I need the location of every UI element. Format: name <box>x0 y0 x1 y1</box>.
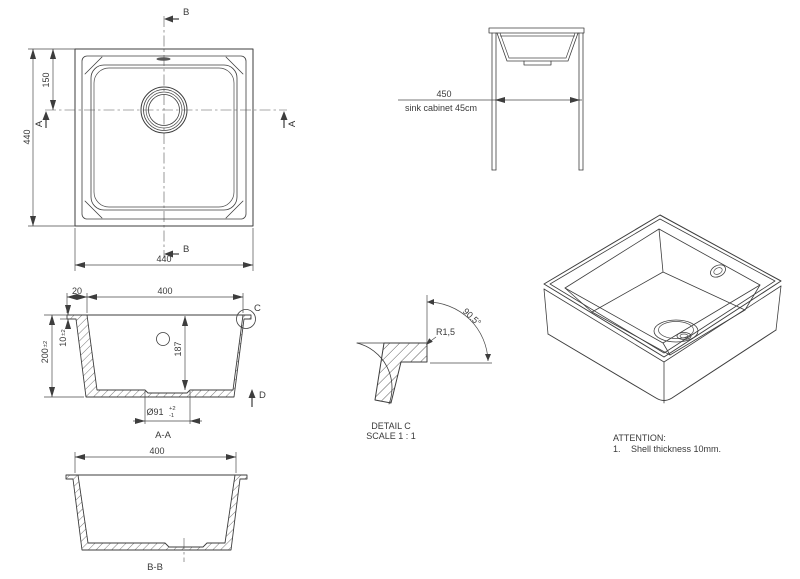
section-bb-title: B-B <box>147 562 163 573</box>
direction-d-label: D <box>259 390 266 401</box>
dim-overall-depth-value: 200 <box>40 348 50 363</box>
dim-bb-opening: 400 <box>75 446 236 473</box>
section-b-marker-top: B <box>164 7 189 23</box>
dim-rim-thickness-value: 10 <box>58 337 68 347</box>
iso-drain <box>654 320 698 342</box>
iso-overflow-hole <box>708 262 727 279</box>
section-aa-title: A-A <box>155 430 172 441</box>
dim-angle-label: 90.5° <box>461 306 484 328</box>
cabinet-note-label: sink cabinet 45cm <box>405 103 477 113</box>
iso-bowl-floor <box>592 272 745 355</box>
section-bb-body <box>66 475 247 550</box>
dim-bowl-depth: 187 <box>173 316 185 390</box>
dim-drain-offset: 150 <box>41 49 53 110</box>
iso-bowl-opening <box>565 229 760 343</box>
dim-overall-depth-tol: ±2 <box>43 341 49 347</box>
dim-rim-thickness-tol: ±2 <box>61 329 67 335</box>
attention-item-text: Shell thickness 10mm. <box>631 444 721 454</box>
section-a-marker-left: A <box>34 111 50 128</box>
dim-cabinet-width-label: 450 <box>436 89 451 99</box>
sink-bowl-profile <box>497 33 578 65</box>
section-a-marker-right: A <box>281 111 299 128</box>
dim-drain-diameter-label: Ø91 <box>146 407 163 417</box>
dim-opening-width-label: 400 <box>157 286 172 296</box>
dim-bb-opening-label: 400 <box>149 446 164 456</box>
detail-c-marker-label: C <box>254 303 261 314</box>
section-b-label-bottom: B <box>183 244 189 255</box>
iso-rim-inner <box>550 219 775 353</box>
overflow-slot <box>157 57 171 61</box>
detail-c-scale: SCALE 1 : 1 <box>366 431 416 441</box>
top-view: B B A A 440 150 <box>22 7 298 271</box>
attention-item-number: 1. <box>613 444 621 454</box>
overflow-hole-section <box>157 333 170 346</box>
isometric-view <box>544 215 781 403</box>
dim-drain-tol-plus: +2 <box>169 406 176 412</box>
dim-overall-width-label: 440 <box>156 254 171 264</box>
detail-c-radius-dim: R1,5 <box>426 327 455 345</box>
section-a-label-left: A <box>34 120 45 127</box>
dim-cabinet-width: 450 sink cabinet 45cm <box>398 89 582 113</box>
dim-rim-thickness-label: 10±2 <box>58 329 68 346</box>
dim-overall-height-label: 440 <box>22 129 32 144</box>
direction-d-arrow: D <box>249 389 267 407</box>
drawing-svg: B B A A 440 150 <box>0 0 800 579</box>
iso-bowl-corner-edges <box>565 229 760 355</box>
dim-drain-tol-minus: -1 <box>169 413 174 419</box>
section-aa: 20 400 10±2 200±2 187 Ø91 +2 - <box>40 286 266 441</box>
section-a-label-right: A <box>287 120 298 127</box>
detail-c-view: 90.5° R1,5 DETAIL C SCALE 1 : 1 <box>357 295 492 441</box>
section-aa-body <box>67 315 251 397</box>
section-bb: 400 B-B <box>66 446 247 573</box>
detail-c-title: DETAIL C <box>371 421 411 431</box>
dim-rim-and-opening: 20 400 <box>67 286 243 313</box>
section-b-label-top: B <box>183 7 189 18</box>
dim-bowl-depth-label: 187 <box>173 341 183 356</box>
countertop <box>489 28 584 33</box>
cabinet-view: 450 sink cabinet 45cm <box>398 28 584 170</box>
dim-overall-depth-label: 200±2 <box>40 341 50 363</box>
dim-rim-width-label: 20 <box>72 286 82 296</box>
attention-heading: ATTENTION: <box>613 433 666 443</box>
attention-note: ATTENTION: 1. Shell thickness 10mm. <box>613 433 721 454</box>
cabinet-walls <box>492 33 583 170</box>
technical-drawing-sheet: B B A A 440 150 <box>0 0 800 579</box>
detail-c-section-material <box>375 343 427 403</box>
dim-drain-offset-label: 150 <box>41 72 51 87</box>
dim-radius-label: R1,5 <box>436 327 455 337</box>
